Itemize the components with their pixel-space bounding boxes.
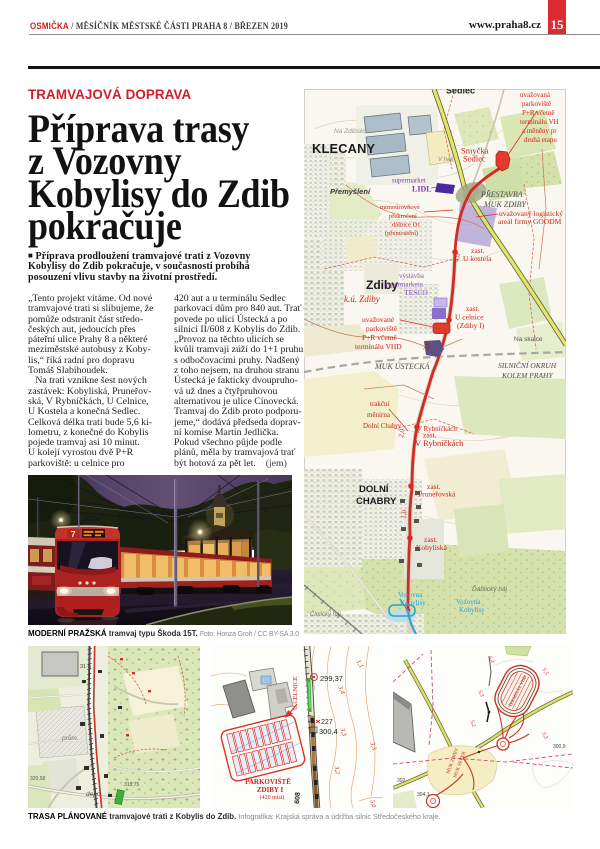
svg-text:mimoúrovňové: mimoúrovňové: [380, 204, 420, 211]
svg-text:Přemyšlení: Přemyšlení: [330, 187, 371, 196]
svg-text:TESCO: TESCO: [404, 288, 428, 297]
svg-text:k.ú. Zdiby: k.ú. Zdiby: [344, 294, 380, 304]
svg-text:300,9: 300,9: [553, 744, 566, 750]
svg-text:U kostela: U kostela: [463, 254, 492, 263]
svg-text:měnírna: měnírna: [367, 411, 391, 419]
svg-text:227: 227: [321, 719, 333, 726]
svg-text:SILNIČNÍ OKRUH: SILNIČNÍ OKRUH: [498, 360, 557, 370]
svg-text:Sedlec: Sedlec: [446, 89, 475, 96]
svg-text:a měněny pr: a měněny pr: [522, 127, 557, 135]
svg-text:(Zdiby I): (Zdiby I): [457, 321, 485, 330]
svg-text:Kobylisy: Kobylisy: [459, 606, 485, 614]
svg-text:dálnice D1: dálnice D1: [392, 222, 420, 229]
svg-text:PŘESTAVBA: PŘESTAVBA: [480, 189, 523, 199]
svg-text:supermarket: supermarket: [392, 178, 426, 185]
svg-text:320,58: 320,58: [30, 776, 46, 782]
svg-text:P+R včetně: P+R včetně: [362, 333, 398, 342]
svg-text:druhá etapu: druhá etapu: [524, 136, 557, 144]
svg-text:terminálu VH: terminálu VH: [520, 118, 559, 126]
svg-text:Čimický háj: Čimický háj: [310, 611, 341, 618]
svg-text:KOLEM PRAHY: KOLEM PRAHY: [501, 371, 553, 380]
svg-text:7: 7: [71, 529, 76, 539]
svg-text:31·b: 31·b: [80, 664, 91, 670]
svg-text:Vozovna: Vozovna: [456, 598, 481, 606]
svg-text:U CELNICE: U CELNICE: [292, 676, 299, 710]
svg-text:parkoviště: parkoviště: [522, 100, 551, 108]
svg-text:MUK ÚSTECKÁ: MUK ÚSTECKÁ: [374, 361, 430, 371]
svg-text:(420 míst): (420 míst): [260, 794, 285, 801]
svg-text:V Rybníčkách: V Rybníčkách: [415, 438, 464, 448]
svg-text:PARKOVIŠTĚ: PARKOVIŠTĚ: [245, 778, 291, 786]
svg-text:uvažovaná: uvažovaná: [520, 91, 551, 99]
svg-text:300,4: 300,4: [319, 727, 338, 736]
svg-text:Kobylisy: Kobylisy: [400, 599, 426, 607]
svg-text:trakční: trakční: [370, 400, 389, 408]
svg-text:Kobyliská: Kobyliská: [416, 543, 448, 552]
svg-text:299,37: 299,37: [320, 674, 343, 683]
svg-text:ZDIBY I: ZDIBY I: [257, 786, 284, 794]
svg-text:302: 302: [397, 778, 406, 784]
svg-text:318,75: 318,75: [124, 782, 140, 788]
svg-text:Ďáblický háj: Ďáblický háj: [472, 584, 508, 593]
svg-text:uvažované: uvažované: [362, 315, 395, 324]
svg-text:Sedlec: Sedlec: [463, 154, 486, 164]
svg-text:Na skalce: Na skalce: [514, 336, 543, 343]
svg-text:V háji: V háji: [438, 157, 454, 163]
svg-text:608: 608: [294, 792, 302, 804]
svg-text:CHABRY: CHABRY: [356, 496, 397, 507]
svg-text:KLECANY: KLECANY: [312, 141, 376, 156]
svg-text:výstavba: výstavba: [399, 272, 425, 280]
svg-text:Vozovna: Vozovna: [398, 591, 423, 599]
svg-text:304,1: 304,1: [417, 792, 430, 798]
svg-text:MUK ZDIBY: MUK ZDIBY: [483, 200, 528, 209]
svg-text:depo: depo: [86, 791, 101, 798]
svg-text:areál firmy GOODM: areál firmy GOODM: [498, 217, 562, 226]
svg-text:prům.: prům.: [61, 734, 79, 742]
svg-text:terminálu VHD: terminálu VHD: [355, 342, 402, 351]
svg-text:parkoviště: parkoviště: [366, 324, 398, 333]
svg-text:LIDL: LIDL: [412, 185, 432, 194]
svg-text:DOLNÍ: DOLNÍ: [359, 484, 389, 495]
svg-text:Pruneřovská: Pruneřovská: [418, 490, 456, 499]
svg-text:(přemostění): (přemostění): [385, 230, 418, 237]
svg-text:Dolní Chabry: Dolní Chabry: [363, 422, 402, 430]
svg-text:P+R včetně: P+R včetně: [522, 109, 555, 117]
svg-text:Na Zdibsku: Na Zdibsku: [334, 128, 367, 135]
svg-text:překročení: překročení: [389, 213, 417, 220]
